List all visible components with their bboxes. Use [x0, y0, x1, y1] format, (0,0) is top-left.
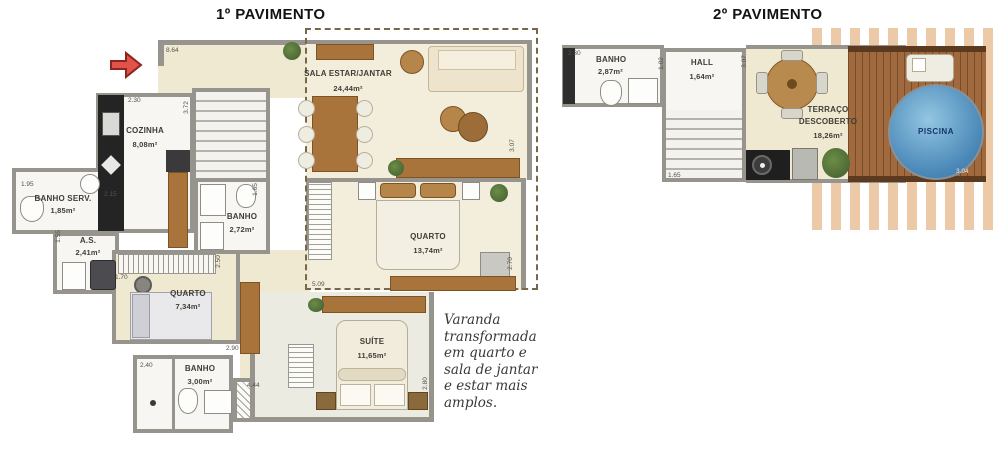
- dim-deck-b: 3.04: [956, 168, 969, 175]
- room-label-banho-f2: BANHO: [596, 55, 644, 64]
- room-label-terraco-1: TERRAÇO: [794, 105, 862, 114]
- terrace-chair: [816, 72, 828, 94]
- grill-knob: [760, 163, 765, 168]
- pool: PISCINA: [888, 84, 984, 180]
- room-label-hall: HALL: [680, 58, 724, 67]
- cabinet: [792, 148, 818, 180]
- dim-banho-f2-w: 2.30: [568, 50, 581, 57]
- plant-icon: [822, 148, 850, 178]
- room-label-terraco-2: DESCOBERTO: [790, 117, 866, 126]
- floor2-title: 2º PAVIMENTO: [713, 6, 822, 23]
- terrace-chair: [781, 50, 803, 61]
- deck-pillow: [912, 58, 926, 72]
- floor-plan-canvas: 1º PAVIMENTO: [0, 0, 1000, 455]
- dim-hall-h: 1.02: [658, 57, 665, 70]
- room-area-banho-f2: 2,87m²: [598, 67, 646, 76]
- toilet-icon: [600, 80, 622, 106]
- sink: [628, 78, 658, 104]
- floor2-plan: 2º PAVIMENTO PISCINA BANHO 2,8: [0, 0, 1000, 455]
- pool-label: PISCINA: [890, 127, 982, 136]
- terrace-chair: [756, 72, 768, 94]
- table-center: [787, 79, 797, 89]
- dim-stairs-b: 1.65: [668, 172, 681, 179]
- room-area-terraco: 18,26m²: [794, 131, 862, 140]
- room-area-hall: 1,64m²: [678, 72, 726, 81]
- dim-terraco-h: 3.07: [741, 55, 748, 68]
